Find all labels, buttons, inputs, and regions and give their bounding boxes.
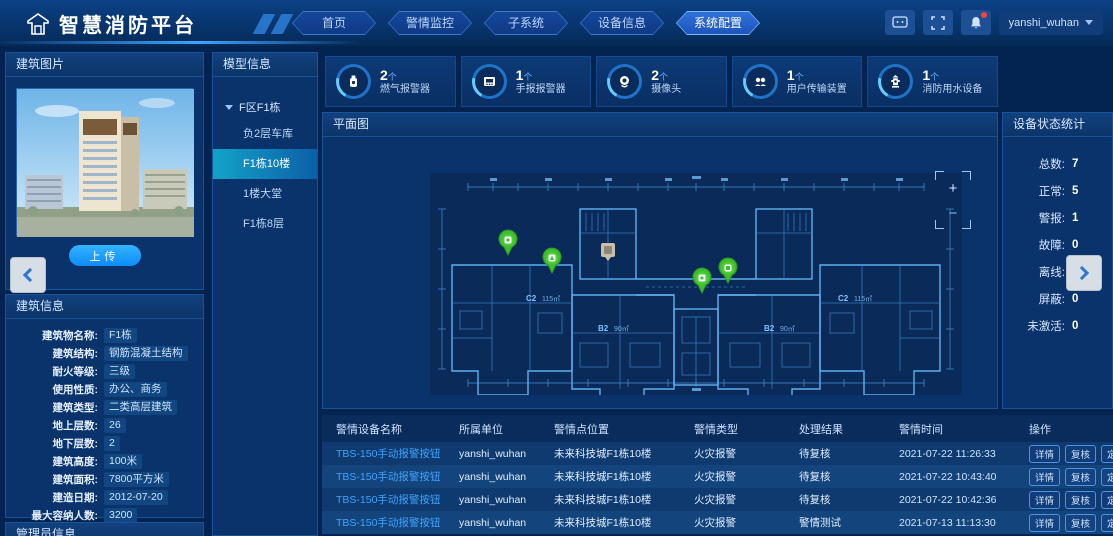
table-row[interactable]: TBS-150手动报警按钮 yanshi_wuhan 未来科技城F1栋10楼 火… (322, 465, 1113, 488)
stat-card-fire-water: 1个 消防用水设备 (867, 56, 998, 107)
status-total: 总数:7 (1003, 150, 1112, 177)
table-row[interactable]: TBS-150手动报警按钮 yanshi_wuhan 未来科技城F1栋10楼 火… (322, 511, 1113, 534)
nav-tab-subsystem[interactable]: 子系统 (484, 11, 568, 35)
tree-expand-icon (225, 105, 233, 110)
locate-button[interactable]: 定位 (1101, 468, 1113, 486)
model-info-panel: 模型信息 F区F1栋 负2层车库 F1栋10楼 1楼大堂 F1栋8层 (212, 52, 318, 536)
nav-tab-alarm-monitor[interactable]: 警情监控 (388, 11, 472, 35)
status-alarm: 警报:1 (1003, 204, 1112, 231)
building-info-fields: 建筑物名称: F1栋 建筑结构: 钢筋混凝土结构 耐火等级: 三级 使用性质: … (6, 319, 203, 524)
device-name-link[interactable]: TBS-150手动报警按钮 (322, 515, 453, 530)
manual-alarm-icon (475, 67, 504, 96)
chevron-down-icon (1085, 20, 1093, 25)
app-logo: 智慧消防平台 (26, 9, 197, 38)
smart-fire-platform: 智慧消防平台 首页 警情监控 子系统 设备信息 系统配置 (0, 0, 1113, 536)
upload-button[interactable]: 上传 (69, 245, 141, 266)
status-inactive: 未激活:0 (1003, 312, 1112, 339)
svg-text:90㎡: 90㎡ (614, 325, 629, 333)
plan-zoom-control: + − (935, 171, 971, 229)
svg-text:115㎡: 115㎡ (542, 295, 560, 303)
detail-button[interactable]: 详情 (1029, 468, 1060, 486)
building-photo-panel: 建筑图片 (5, 52, 204, 290)
locate-button[interactable]: 定位 (1101, 514, 1113, 532)
nav-tab-home[interactable]: 首页 (292, 11, 376, 35)
floor-plan-blueprint[interactable]: C2 115㎡ B2 90㎡ B2 90㎡ C2 115㎡ (430, 173, 962, 395)
monitor-icon[interactable] (885, 10, 915, 35)
chevron-left-icon (23, 268, 37, 282)
review-button[interactable]: 复核 (1065, 468, 1096, 486)
detail-button[interactable]: 详情 (1029, 514, 1060, 532)
notification-badge (981, 12, 987, 18)
camera-icon (610, 67, 639, 96)
device-status-list: 总数:7 正常:5 警报:1 故障:0 离线:1 屏蔽:0 未激活:0 (1003, 137, 1112, 339)
field-height: 建筑高度: 100米 (6, 452, 203, 470)
svg-text:115㎡: 115㎡ (854, 295, 872, 303)
building-photo (16, 88, 193, 236)
alarm-table-header: 警情设备名称 所属单位 警情点位置 警情类型 处理结果 警情时间 操作 (322, 415, 1113, 442)
field-floors-below: 地下层数: 2 (6, 434, 203, 452)
notification-bell-icon[interactable] (961, 10, 991, 35)
device-name-link[interactable]: TBS-150手动报警按钮 (322, 492, 453, 507)
hydrant-icon (881, 67, 910, 96)
field-area: 建筑面积: 7800平方米 (6, 470, 203, 488)
logo-icon (26, 12, 50, 36)
tree-node-root[interactable]: F区F1栋 (213, 95, 317, 119)
app-title: 智慧消防平台 (59, 9, 197, 38)
field-build-date: 建造日期: 2012-07-20 (6, 488, 203, 506)
unit-label-c2-left: C2 (526, 294, 537, 303)
admin-info-title: 管理员信息 (6, 523, 203, 536)
floor-plan-panel: 平面图 (322, 112, 998, 409)
unit-label-c2-right: C2 (838, 294, 849, 303)
field-floors-above: 地上层数: 26 (6, 416, 203, 434)
panel-next-button[interactable] (1066, 255, 1102, 291)
model-info-title: 模型信息 (213, 53, 317, 77)
floor-plan-canvas[interactable]: C2 115㎡ B2 90㎡ B2 90㎡ C2 115㎡ (323, 137, 997, 409)
status-fault: 故障:0 (1003, 231, 1112, 258)
header-glow-line (0, 41, 360, 44)
table-row[interactable]: TBS-150手动报警按钮 yanshi_wuhan 未来科技城F1栋10楼 火… (322, 488, 1113, 511)
detail-button[interactable]: 详情 (1029, 491, 1060, 509)
main-nav: 首页 警情监控 子系统 设备信息 系统配置 (292, 11, 760, 35)
unit-label-b2-left: B2 (598, 324, 609, 333)
nav-tab-device-info[interactable]: 设备信息 (580, 11, 664, 35)
device-name-link[interactable]: TBS-150手动报警按钮 (322, 446, 453, 461)
locate-button[interactable]: 定位 (1101, 445, 1113, 463)
tree-node-floor8[interactable]: F1栋8层 (213, 209, 317, 239)
header-slash-decoration (258, 14, 288, 34)
table-row[interactable]: TBS-150手动报警按钮 yanshi_wuhan 未来科技城F1栋10楼 火… (322, 442, 1113, 465)
stat-card-gas-alarm: 2个 燃气报警器 (325, 56, 456, 107)
locate-button[interactable]: 定位 (1101, 491, 1113, 509)
stat-card-manual-alarm: 1个 手报报警器 (461, 56, 592, 107)
svg-text:90㎡: 90㎡ (780, 325, 795, 333)
field-fire-rating: 耐火等级: 三级 (6, 362, 203, 380)
building-photo-title: 建筑图片 (6, 53, 203, 77)
detail-button[interactable]: 详情 (1029, 445, 1060, 463)
device-stats-row: 2个 燃气报警器 1个 手报报警器 (325, 56, 998, 107)
device-name-link[interactable]: TBS-150手动报警按钮 (322, 469, 453, 484)
stat-card-transmission: 1个 用户传输装置 (732, 56, 863, 107)
device-status-title: 设备状态统计 (1003, 113, 1112, 137)
tree-node-floor10-selected[interactable]: F1栋10楼 (213, 149, 317, 179)
nav-tab-system-config[interactable]: 系统配置 (676, 11, 760, 35)
device-pin-normal-1[interactable] (499, 230, 517, 255)
fullscreen-icon[interactable] (923, 10, 953, 35)
zoom-out-button[interactable]: − (935, 206, 971, 221)
transmission-device-icon (746, 67, 775, 96)
review-button[interactable]: 复核 (1065, 445, 1096, 463)
building-info-panel: 建筑信息 建筑物名称: F1栋 建筑结构: 钢筋混凝土结构 耐火等级: 三级 使… (5, 294, 204, 518)
unit-label-b2-right: B2 (764, 324, 775, 333)
review-button[interactable]: 复核 (1065, 491, 1096, 509)
alarm-table: 警情设备名称 所属单位 警情点位置 警情类型 处理结果 警情时间 操作 TBS-… (322, 415, 1113, 534)
model-tree: F区F1栋 负2层车库 F1栋10楼 1楼大堂 F1栋8层 (213, 77, 317, 239)
tree-node-lobby[interactable]: 1楼大堂 (213, 179, 317, 209)
field-building-type: 建筑类型: 二类高层建筑 (6, 398, 203, 416)
device-pin-normal-3[interactable] (693, 268, 711, 293)
admin-info-panel: 管理员信息 (5, 522, 204, 536)
field-structure: 建筑结构: 钢筋混凝土结构 (6, 344, 203, 362)
user-menu[interactable]: yanshi_wuhan (999, 10, 1103, 35)
top-header: 智慧消防平台 首页 警情监控 子系统 设备信息 系统配置 (0, 0, 1113, 46)
username: yanshi_wuhan (1009, 17, 1079, 29)
status-normal: 正常:5 (1003, 177, 1112, 204)
zoom-in-button[interactable]: + (935, 181, 971, 196)
field-usage: 使用性质: 办公、商务 (6, 380, 203, 398)
device-pin-group (499, 230, 737, 293)
gas-detector-icon (339, 67, 368, 96)
device-pin-offline[interactable] (601, 243, 615, 261)
device-pin-normal-2[interactable] (543, 248, 561, 273)
photo-prev-button[interactable] (10, 257, 46, 293)
tree-node-garage[interactable]: 负2层车库 (213, 119, 317, 149)
review-button[interactable]: 复核 (1065, 514, 1096, 532)
floor-plan-title: 平面图 (323, 113, 997, 137)
header-actions: yanshi_wuhan (885, 10, 1103, 35)
chevron-right-icon (1075, 266, 1089, 280)
field-building-name: 建筑物名称: F1栋 (6, 326, 203, 344)
stat-card-camera: 2个 摄像头 (596, 56, 727, 107)
building-info-title: 建筑信息 (6, 295, 203, 319)
